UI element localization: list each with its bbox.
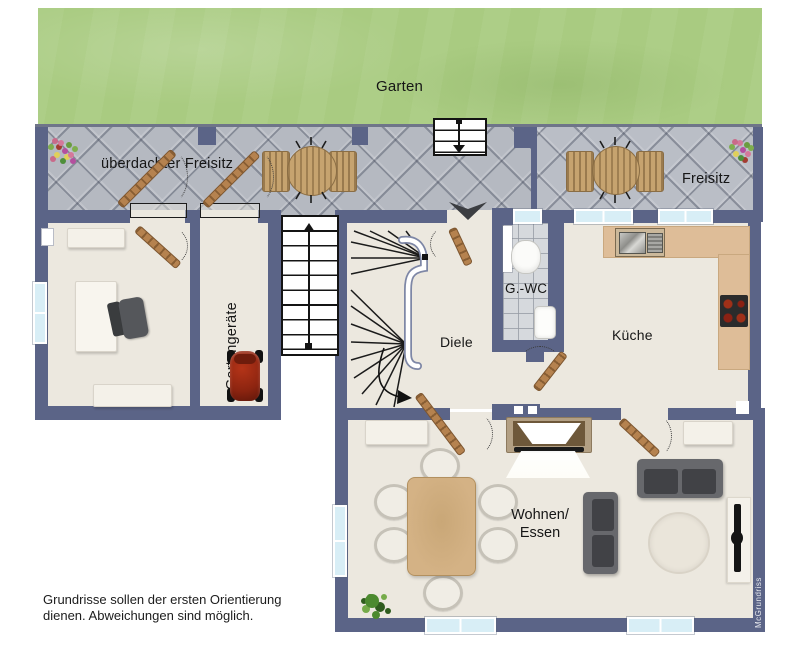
living-dining-label: Wohnen/ Essen xyxy=(495,506,585,542)
office-chair xyxy=(108,296,150,340)
disclaimer: Grundrisse sollen der ersten Orientierun… xyxy=(43,592,281,624)
steps-start-dot xyxy=(456,118,462,124)
open-terrace-label: Freisitz xyxy=(682,171,730,187)
door-swing-arc xyxy=(640,415,672,457)
disclaimer-line2: dienen. Abweichungen sind möglich. xyxy=(43,608,281,624)
door-swing-arc xyxy=(236,150,274,204)
living-label-line1: Wohnen/ xyxy=(495,506,585,524)
window xyxy=(33,282,47,344)
watermark: McGrundriss xyxy=(754,556,763,628)
fireplace xyxy=(506,417,592,453)
wall-segment xyxy=(48,210,130,223)
entrance-arrow-icon xyxy=(449,202,487,220)
dining-chair xyxy=(423,575,463,611)
wall-segment xyxy=(629,210,658,223)
door-swing-arc xyxy=(455,412,493,456)
kitchen-sink xyxy=(615,228,665,257)
sideboard xyxy=(365,420,428,445)
disclaimer-line1: Grundrisse sollen der ersten Orientierun… xyxy=(43,592,281,608)
terrace-divider-wall xyxy=(531,127,537,215)
living-label-line2: Essen xyxy=(495,524,585,542)
wall-segment xyxy=(35,127,48,420)
stair-arrow-up-icon xyxy=(303,217,315,232)
wall-segment xyxy=(668,408,765,420)
wall-segment xyxy=(190,223,200,407)
hallway-label: Diele xyxy=(440,334,473,350)
kitchen-label: Küche xyxy=(612,327,653,343)
window xyxy=(658,209,713,224)
flower-bush-right xyxy=(732,139,737,144)
window xyxy=(425,617,496,634)
wall-segment xyxy=(335,210,447,223)
wall-segment xyxy=(35,406,281,420)
stair-start-dot xyxy=(305,343,312,350)
wall-segment xyxy=(709,210,753,223)
sideboard xyxy=(683,421,733,445)
window xyxy=(574,209,633,224)
sideboard xyxy=(67,228,125,248)
wc-sink xyxy=(534,306,556,339)
wc-door-panel xyxy=(503,226,512,272)
potted-plant xyxy=(355,586,395,622)
chimney-vent xyxy=(514,406,523,414)
wall-segment xyxy=(492,223,503,352)
door-swing-arc xyxy=(520,346,560,378)
garden-steps xyxy=(433,118,487,156)
terrace-table-ticks xyxy=(276,135,346,205)
window xyxy=(627,617,694,634)
terrace-table-ticks xyxy=(580,135,650,205)
dining-table xyxy=(407,477,476,576)
wall-segment xyxy=(753,127,763,222)
garden-label: Garten xyxy=(376,78,423,95)
winder-staircase xyxy=(348,228,433,408)
window xyxy=(513,209,542,224)
door-swing-arc xyxy=(150,150,188,204)
sideboard xyxy=(93,384,172,407)
chimney-vent xyxy=(528,406,537,414)
round-rug xyxy=(648,512,710,574)
door-swing-arc xyxy=(430,226,466,262)
lawn-mower xyxy=(226,348,264,404)
guest-wc-label: G.-WC xyxy=(505,281,547,296)
steps-arrow-down-icon xyxy=(453,145,465,159)
sofa-large xyxy=(637,459,723,498)
exterior-staircase xyxy=(281,215,339,356)
wall-segment xyxy=(268,210,281,420)
toilet xyxy=(511,240,541,274)
wall-segment xyxy=(185,210,200,223)
tv-center xyxy=(731,531,743,545)
terrace-pillar xyxy=(198,127,216,145)
wall-segment xyxy=(335,618,765,632)
wall-niche-small xyxy=(41,228,54,246)
terrace-pillar xyxy=(352,127,368,145)
stair-walkline xyxy=(308,225,310,347)
sofa-small xyxy=(583,492,618,574)
stove xyxy=(720,295,748,327)
floor-plan: Garten überdachter Freisitz Freisitz xyxy=(0,0,800,665)
wall-niche xyxy=(736,401,749,414)
flower-bush-left xyxy=(52,138,58,144)
garden-area xyxy=(38,8,762,126)
door-swing-arc xyxy=(148,226,188,266)
door-frame xyxy=(130,203,187,218)
window xyxy=(333,505,347,577)
